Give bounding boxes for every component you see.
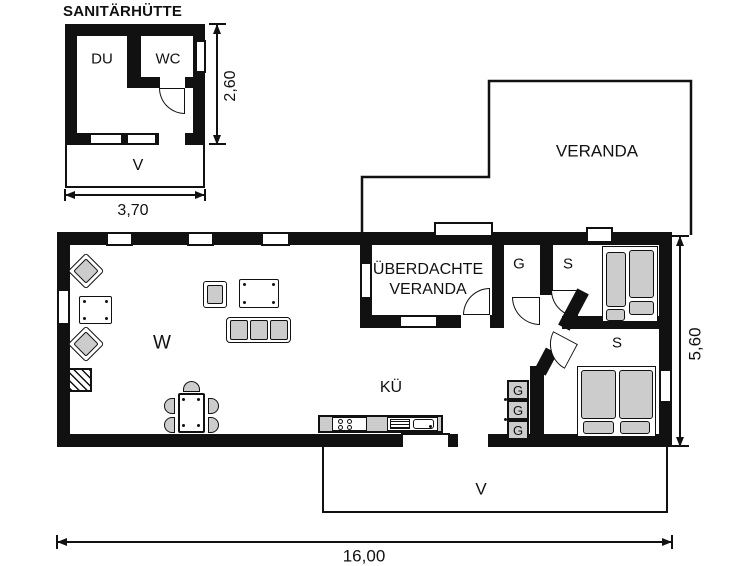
- window: [57, 289, 70, 325]
- pillow: [583, 421, 614, 434]
- armchair: [203, 281, 227, 308]
- room-label-wc: WC: [156, 52, 181, 67]
- closet-g: G: [507, 380, 529, 400]
- burner: [347, 425, 352, 430]
- room-label-g: G: [513, 257, 525, 272]
- dim-arrow: [195, 191, 205, 199]
- hut-wc-wall: [127, 77, 160, 88]
- room-label-s1: S: [563, 257, 573, 272]
- window: [360, 262, 372, 299]
- faucet-dot: [429, 425, 432, 428]
- room-label-ku: KÜ: [380, 380, 402, 396]
- table-dots: [243, 283, 246, 286]
- hut-title: SANITÄRHÜTTE: [63, 3, 182, 20]
- room-label-covered-veranda-2: VERANDA: [389, 282, 466, 298]
- armchair-cushion: [207, 285, 223, 304]
- room-label-hut-veranda: V: [133, 158, 144, 174]
- room-label-du: DU: [91, 52, 113, 67]
- window: [586, 227, 613, 243]
- closet-g: G: [507, 420, 529, 440]
- closet-g: G: [507, 400, 529, 420]
- dining-chair: [164, 398, 175, 414]
- table-dots: [182, 398, 185, 401]
- pillow: [620, 421, 650, 434]
- hut-divider-wall: [127, 36, 141, 77]
- open-veranda-outline: [360, 79, 696, 237]
- burner: [347, 419, 352, 424]
- window: [126, 133, 157, 145]
- dim-arrow: [65, 191, 75, 199]
- room-label-w: W: [153, 334, 171, 353]
- mattress: [629, 250, 654, 298]
- sofa-cushion: [270, 320, 288, 340]
- main-veranda-deck: [322, 447, 668, 513]
- dim-arrow: [676, 437, 684, 447]
- dim-label-hut-depth: 2,60: [223, 70, 239, 101]
- pillow: [606, 309, 625, 321]
- table-dots: [83, 300, 86, 303]
- mattress: [606, 252, 626, 307]
- entry-door-opening: [458, 433, 488, 447]
- closet-hinge-dot: [504, 398, 507, 401]
- armchair-cushion: [73, 258, 98, 283]
- dim-arrow: [676, 236, 684, 246]
- window: [399, 315, 438, 328]
- dim-label-main-depth: 5,60: [687, 327, 704, 360]
- pillow: [629, 301, 654, 315]
- room-label-open-veranda: VERANDA: [556, 143, 638, 160]
- fireplace: [68, 368, 92, 392]
- mattress: [619, 370, 653, 419]
- closet-hinge-dot: [504, 438, 507, 441]
- window: [187, 232, 214, 246]
- dim-line-hut-depth: [216, 24, 218, 145]
- room-label-s2: S: [612, 336, 622, 351]
- covered-veranda-right-wall: [492, 245, 504, 328]
- dim-arrow: [213, 135, 221, 145]
- sink-drainboard: [390, 419, 410, 429]
- sofa-cushion: [230, 320, 248, 340]
- closet-hinge-dot: [504, 418, 507, 421]
- hut-wc-wall-stub: [185, 77, 193, 88]
- burner: [338, 425, 343, 430]
- dim-arrow: [213, 24, 221, 34]
- covered-veranda-door-opening: [461, 315, 490, 328]
- room-label-covered-veranda-1: ÜBERDACHTE: [373, 262, 483, 278]
- window: [659, 369, 672, 403]
- window: [106, 232, 133, 246]
- dim-arrow: [662, 538, 672, 546]
- window: [89, 133, 123, 145]
- dining-chair: [164, 417, 175, 433]
- floor-plan: SANITÄRHÜTTE DU WC V 3,70 2,60 VERANDA: [0, 0, 755, 566]
- dim-line-hut-width: [65, 194, 205, 196]
- dim-label-hut-width: 3,70: [117, 203, 148, 219]
- burner: [338, 419, 343, 424]
- dining-chair: [183, 381, 200, 392]
- room-label-main-veranda: V: [475, 481, 486, 498]
- window: [261, 232, 290, 246]
- dim-label-main-width: 16,00: [343, 548, 386, 565]
- dim-line-main-depth: [679, 236, 681, 447]
- window: [195, 40, 206, 73]
- window: [434, 222, 493, 237]
- mattress: [581, 370, 616, 419]
- hut-door-opening: [159, 133, 185, 145]
- armchair-cushion: [73, 331, 98, 356]
- dim-arrow: [57, 538, 67, 546]
- sofa-cushion: [250, 320, 268, 340]
- dim-line-main-width: [57, 541, 672, 543]
- hall-vertical-wall: [530, 366, 544, 447]
